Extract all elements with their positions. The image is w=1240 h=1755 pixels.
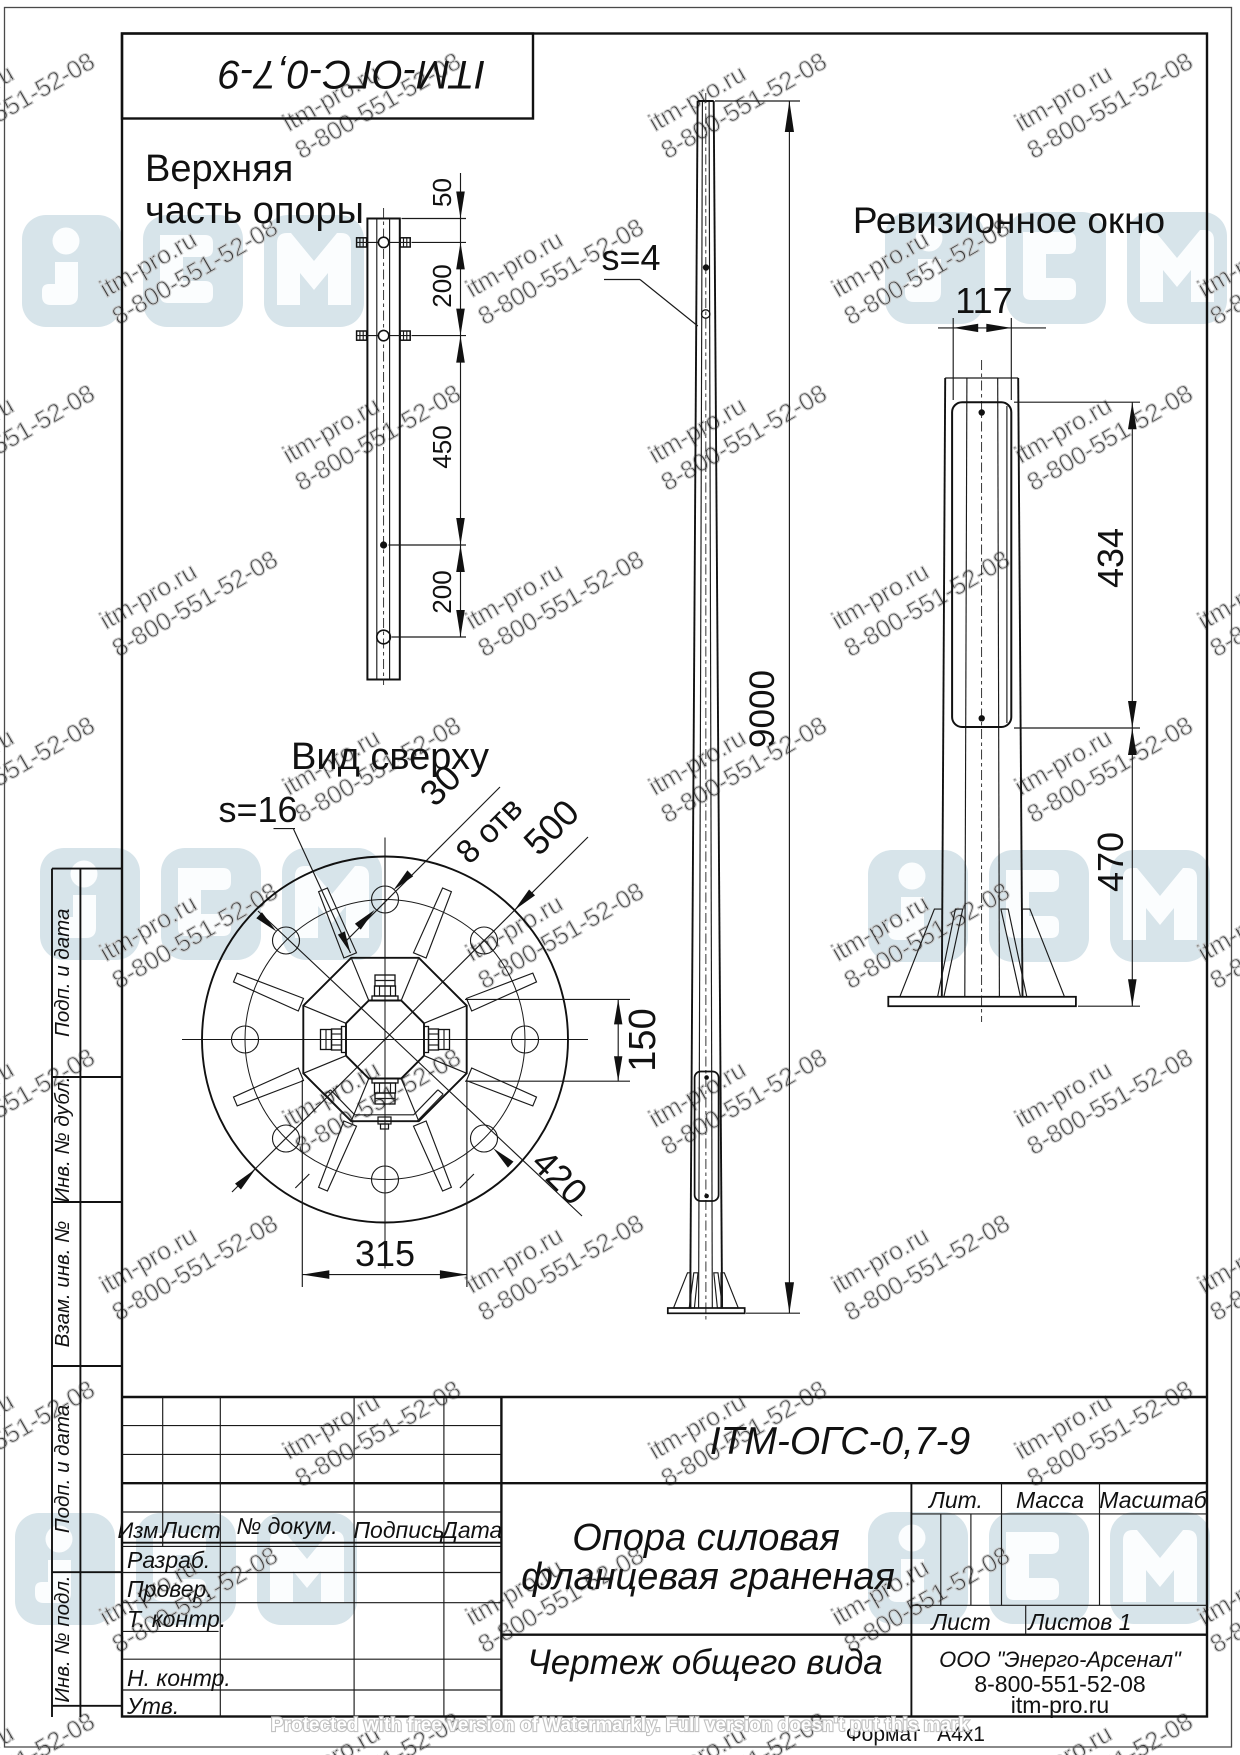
svg-text:Инв. № подл.: Инв. № подл. bbox=[51, 1575, 74, 1702]
svg-text:Ревизионное окно: Ревизионное окно bbox=[853, 200, 1165, 241]
svg-text:Масштаб: Масштаб bbox=[1099, 1487, 1207, 1513]
svg-text:Верхняя: Верхняя bbox=[145, 148, 293, 190]
svg-text:8-800-551-52-08: 8-800-551-52-08 bbox=[0, 1043, 100, 1160]
svg-text:50: 50 bbox=[427, 178, 457, 207]
svg-text:itm-pro.ru: itm-pro.ru bbox=[1010, 1719, 1117, 1755]
svg-text:ITM-ОГС-0,7-9: ITM-ОГС-0,7-9 bbox=[710, 1420, 970, 1463]
svg-text:№ докум.: № докум. bbox=[236, 1513, 337, 1539]
svg-text:Чертеж общего вида: Чертеж общего вида bbox=[527, 1643, 883, 1682]
svg-text:часть опоры: часть опоры bbox=[145, 190, 364, 232]
svg-text:117: 117 bbox=[955, 280, 1012, 321]
svg-text:Подпись: Подпись bbox=[353, 1517, 444, 1543]
svg-text:Лист: Лист bbox=[929, 1609, 990, 1635]
svg-text:Вид сверху: Вид сверху bbox=[291, 736, 489, 778]
svg-text:Изм.: Изм. bbox=[118, 1518, 165, 1543]
svg-text:434: 434 bbox=[1090, 528, 1131, 588]
svg-text:150: 150 bbox=[622, 1008, 664, 1071]
svg-text:s=4: s=4 bbox=[601, 237, 660, 278]
svg-text:itm-pro.ru: itm-pro.ru bbox=[1011, 1692, 1109, 1718]
svg-text:500: 500 bbox=[515, 791, 586, 862]
svg-text:Подп. и дата: Подп. и дата bbox=[51, 1405, 74, 1533]
svg-text:315: 315 bbox=[355, 1233, 415, 1274]
svg-text:Лист: Лист bbox=[159, 1517, 220, 1543]
svg-text:450: 450 bbox=[427, 425, 457, 468]
svg-text:Н. контр.: Н. контр. bbox=[127, 1665, 231, 1691]
svg-text:ITM-ОГС-0,7-9: ITM-ОГС-0,7-9 bbox=[218, 52, 485, 96]
svg-text:Protected with free version of: Protected with free version of Watermark… bbox=[271, 1715, 970, 1736]
svg-text:Опора силовая: Опора силовая bbox=[572, 1517, 840, 1559]
svg-text:420: 420 bbox=[524, 1141, 595, 1212]
svg-text:200: 200 bbox=[427, 264, 457, 307]
svg-text:фланцевая граненая: фланцевая граненая bbox=[521, 1556, 895, 1598]
svg-text:200: 200 bbox=[427, 570, 457, 613]
svg-text:s=16: s=16 bbox=[218, 789, 297, 830]
svg-text:9000: 9000 bbox=[743, 670, 782, 748]
svg-text:Подп. и дата: Подп. и дата bbox=[51, 909, 74, 1037]
svg-text:Инв. № дубл.: Инв. № дубл. bbox=[51, 1076, 74, 1202]
svg-text:Листов 1: Листов 1 bbox=[1027, 1609, 1132, 1635]
svg-text:Разраб.: Разраб. bbox=[127, 1547, 210, 1573]
svg-text:Масса: Масса bbox=[1016, 1487, 1084, 1513]
svg-text:Т. контр.: Т. контр. bbox=[127, 1606, 226, 1632]
svg-text:Провер.: Провер. bbox=[127, 1576, 213, 1602]
svg-text:8-800-551-52-08: 8-800-551-52-08 bbox=[0, 47, 100, 164]
svg-text:470: 470 bbox=[1090, 832, 1131, 892]
svg-text:8 отв: 8 отв bbox=[448, 789, 529, 870]
svg-text:8-800-551-52-08: 8-800-551-52-08 bbox=[0, 711, 100, 828]
svg-text:Лит.: Лит. bbox=[927, 1487, 983, 1513]
svg-text:Утв.: Утв. bbox=[126, 1693, 179, 1719]
svg-text:8-800-551-52-08: 8-800-551-52-08 bbox=[0, 379, 100, 496]
svg-text:ООО "Энерго-Арсенал": ООО "Энерго-Арсенал" bbox=[939, 1647, 1182, 1672]
svg-text:Взам. инв. №: Взам. инв. № bbox=[51, 1221, 74, 1348]
svg-text:8-800-551-52-08: 8-800-551-52-08 bbox=[0, 1375, 100, 1492]
svg-text:Дата: Дата bbox=[439, 1517, 503, 1543]
svg-text:8-800-551-52-08: 8-800-551-52-08 bbox=[0, 1707, 100, 1755]
